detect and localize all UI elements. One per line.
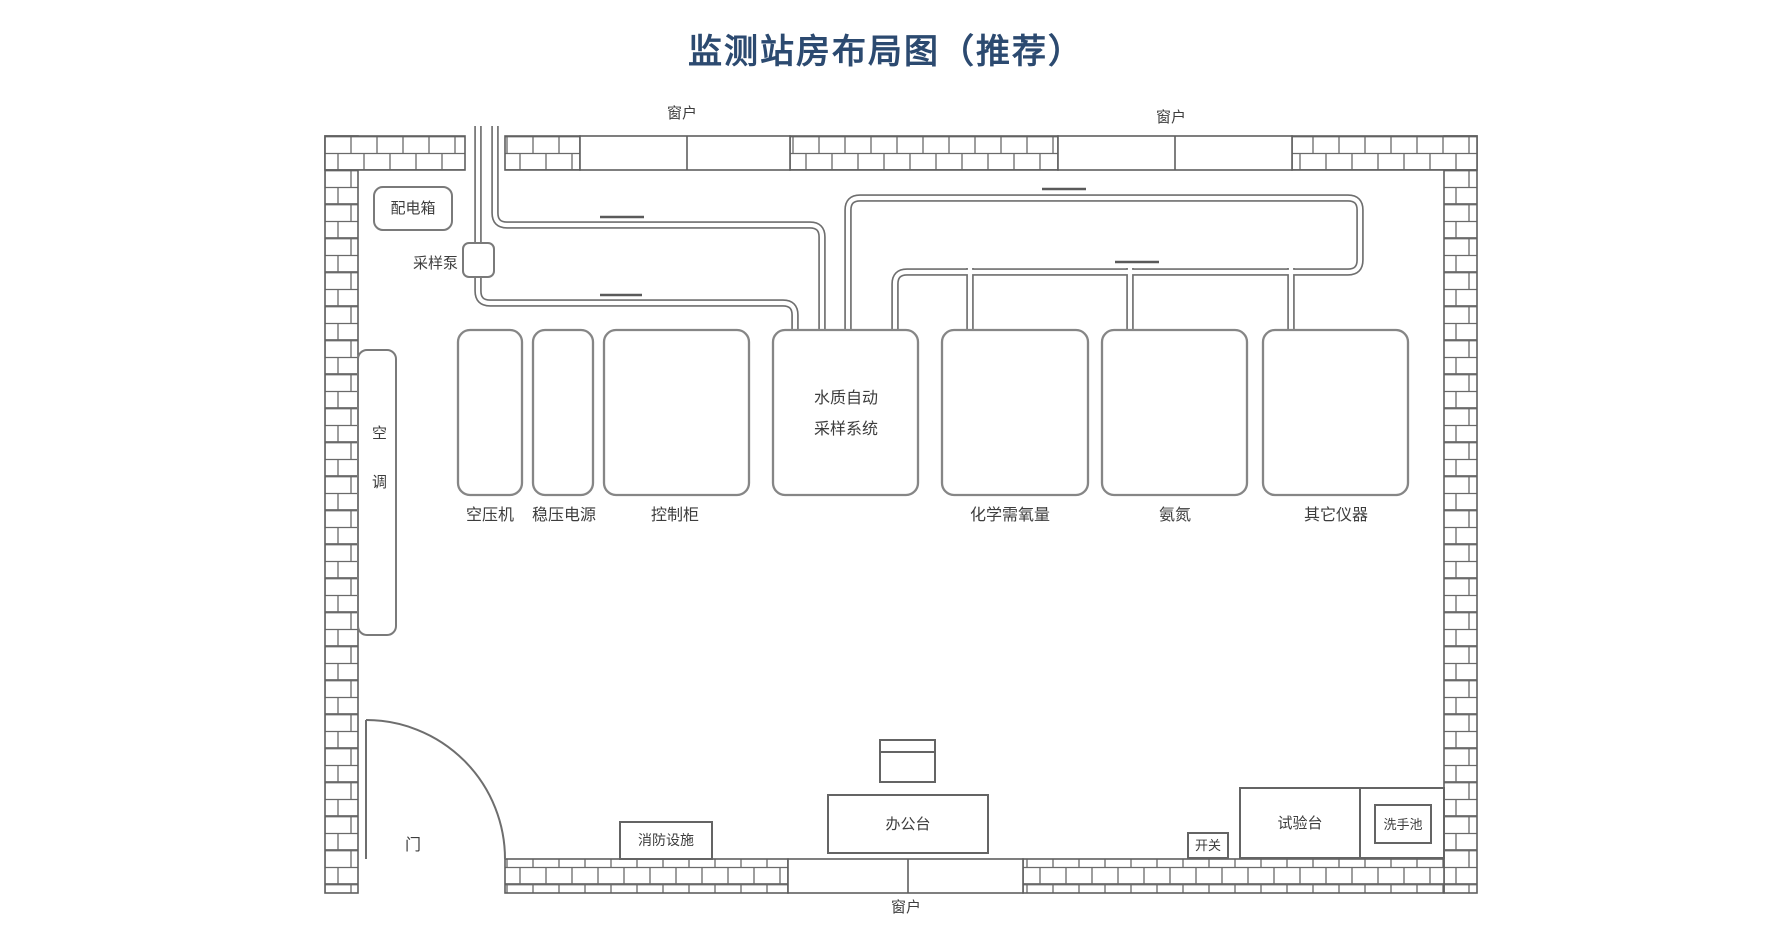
air-compressor-label: 空压机 (466, 506, 514, 525)
wall-top-c (790, 136, 1058, 170)
fire-equipment-label: 消防设施 (620, 832, 712, 849)
computer-monitor (880, 740, 935, 782)
door (366, 720, 505, 859)
door-swing-arc (366, 720, 505, 859)
cod-analyzer-label: 化学需氧量 (970, 506, 1050, 525)
door-label: 门 (405, 836, 421, 855)
window-top-left (580, 136, 790, 170)
window-top-right (1058, 136, 1292, 170)
regulated-power-box (533, 330, 593, 495)
control-cabinet-box (604, 330, 749, 495)
floor-plan-page: 监测站房布局图（推荐） (0, 0, 1772, 943)
sink-label: 洗手池 (1375, 817, 1431, 833)
test-bench-label: 试验台 (1240, 815, 1360, 833)
wall-top-b (505, 136, 580, 170)
air-conditioner-label: 空调 (369, 425, 387, 523)
sampling-pump-box (463, 243, 494, 277)
wall-top-d (1292, 136, 1477, 170)
distribution-box-label: 配电箱 (374, 200, 452, 218)
window-bottom-label: 窗户 (891, 899, 921, 917)
ammonia-nitrogen-label: 氨氮 (1159, 506, 1191, 525)
flow-ticks (600, 189, 1159, 295)
ammonia-nitrogen-box (1102, 330, 1247, 495)
wall-bottom-b (1023, 859, 1444, 893)
cod-analyzer-box (942, 330, 1088, 495)
window-top-right-label: 窗户 (1156, 109, 1186, 127)
control-cabinet-label: 控制柜 (651, 506, 699, 525)
water-sampling-system-label: 水质自动采样系统 (809, 383, 883, 445)
other-instruments-label: 其它仪器 (1304, 506, 1368, 525)
wall-right (1444, 136, 1477, 893)
wall-bottom-a (505, 859, 788, 893)
wall-top-a (325, 136, 465, 170)
window-bottom (788, 859, 1023, 893)
regulated-power-label: 稳压电源 (532, 506, 596, 525)
floor-plan-drawing (0, 0, 1772, 943)
office-desk-label: 办公台 (828, 816, 988, 834)
other-instruments-box (1263, 330, 1408, 495)
air-compressor-box (458, 330, 522, 495)
sampling-pump-label: 采样泵 (396, 255, 458, 273)
switch-label: 开关 (1188, 838, 1228, 854)
window-top-left-label: 窗户 (667, 105, 697, 123)
wall-left (325, 136, 358, 893)
equipment-boxes (358, 187, 1444, 859)
